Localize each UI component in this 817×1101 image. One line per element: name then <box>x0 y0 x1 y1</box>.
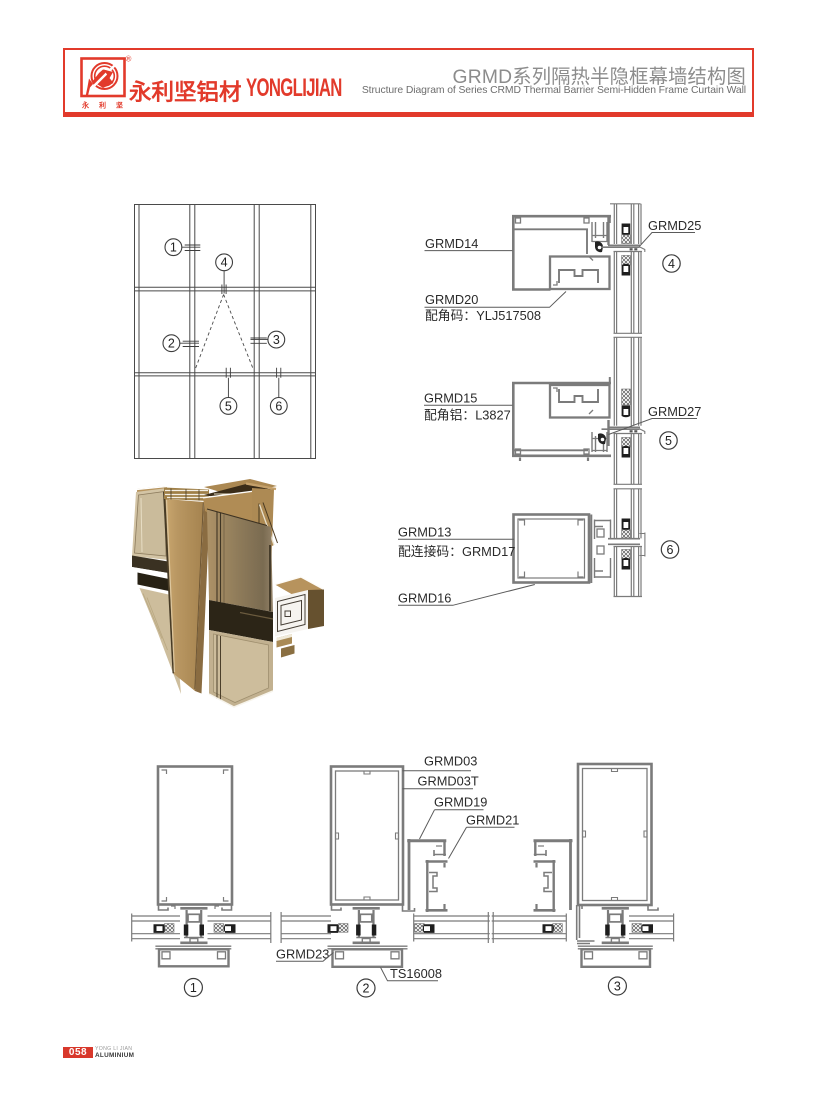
svg-text:配角铝：L3827: 配角铝：L3827 <box>424 408 511 423</box>
svg-text:GRMD15: GRMD15 <box>424 391 477 406</box>
svg-text:5: 5 <box>225 399 232 413</box>
svg-text:GRMD25: GRMD25 <box>648 218 701 233</box>
svg-text:4: 4 <box>221 256 228 270</box>
svg-text:GRMD14: GRMD14 <box>425 236 478 251</box>
svg-text:GRMD13: GRMD13 <box>398 525 451 540</box>
svg-text:5: 5 <box>665 434 672 448</box>
svg-text:1: 1 <box>170 241 177 255</box>
svg-text:GRMD20: GRMD20 <box>425 292 478 307</box>
svg-text:2: 2 <box>363 982 370 996</box>
svg-text:配角码：YLJ517508: 配角码：YLJ517508 <box>425 308 541 323</box>
svg-text:3: 3 <box>614 980 621 994</box>
svg-text:TS16008: TS16008 <box>390 966 442 981</box>
svg-text:6: 6 <box>667 543 674 557</box>
svg-text:GRMD27: GRMD27 <box>648 404 701 419</box>
svg-text:配连接码：GRMD17: 配连接码：GRMD17 <box>398 544 515 559</box>
svg-text:GRMD19: GRMD19 <box>434 795 487 810</box>
svg-text:3: 3 <box>273 333 280 347</box>
svg-text:GRMD03T: GRMD03T <box>418 774 479 789</box>
svg-text:4: 4 <box>668 257 675 271</box>
svg-text:GRMD03: GRMD03 <box>424 754 477 769</box>
svg-text:6: 6 <box>275 399 282 413</box>
svg-text:GRMD16: GRMD16 <box>398 591 451 606</box>
svg-text:1: 1 <box>190 981 197 995</box>
svg-text:GRMD21: GRMD21 <box>466 813 519 828</box>
svg-text:2: 2 <box>168 337 175 351</box>
svg-text:GRMD23: GRMD23 <box>276 947 329 962</box>
